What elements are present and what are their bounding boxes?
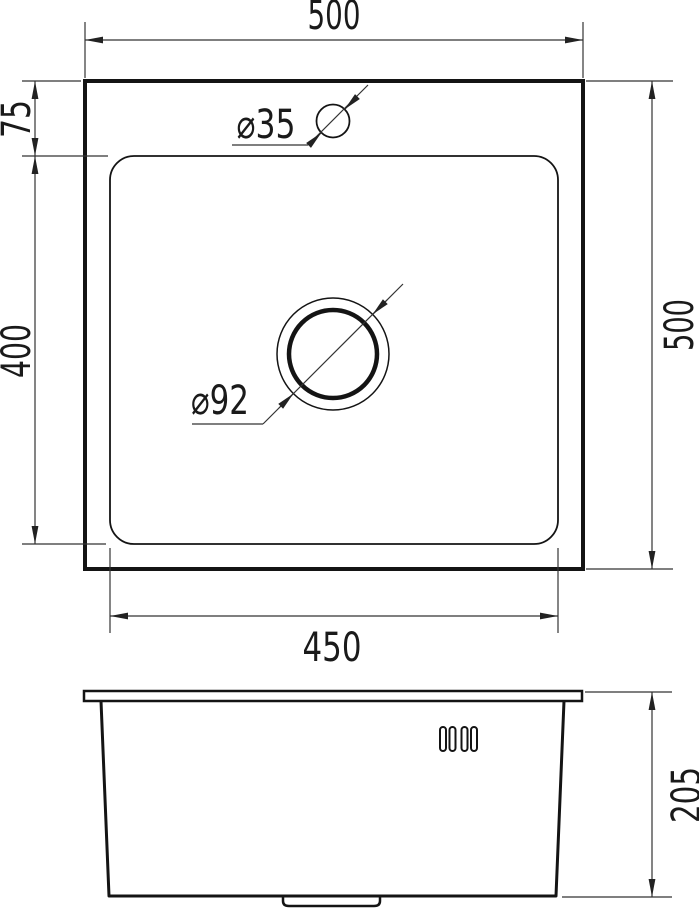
- label-faucet-hole-diameter: ⌀35: [237, 102, 296, 148]
- dim-label-bowl-length: 400: [0, 324, 40, 378]
- dim-depth: 205: [562, 692, 699, 897]
- leader-arrow: [373, 300, 387, 314]
- overflow-slot: [462, 727, 468, 751]
- sink-body-profile: [101, 701, 564, 896]
- dim-label-top-width: 500: [308, 0, 361, 39]
- leader-arrow: [345, 97, 357, 109]
- label-drain-hole-diameter: ⌀92: [191, 378, 249, 424]
- leader-arrow: [279, 394, 293, 408]
- faucet-hole: [317, 105, 350, 138]
- top-view: [85, 81, 583, 569]
- dim-top-width: 500: [85, 0, 583, 78]
- front-view: [84, 691, 582, 906]
- leader-arrow: [309, 133, 321, 145]
- dim-rim-inset: 75: [0, 81, 108, 156]
- dim-label-rim-inset: 75: [0, 100, 40, 138]
- overflow-slot: [440, 727, 446, 751]
- bowl-inner-edge: [110, 156, 558, 544]
- sink-dimensional-drawing: 500 75 400 500 450 ⌀35: [0, 0, 699, 908]
- overflow-slot: [450, 727, 456, 751]
- drain-fitting-profile: [283, 897, 380, 906]
- dim-right-height: 500: [586, 81, 699, 569]
- leader-drain-hole: ⌀92: [191, 284, 403, 424]
- leader-faucet-hole: ⌀35: [232, 85, 368, 148]
- sink-outer-edge: [85, 81, 583, 569]
- dim-label-bowl-width: 450: [303, 625, 362, 671]
- dim-bowl-width: 450: [110, 548, 558, 671]
- drawing-svg: 500 75 400 500 450 ⌀35: [0, 0, 699, 908]
- dim-bowl-length: 400: [0, 156, 106, 544]
- overflow-slots: [440, 727, 477, 751]
- overflow-slot: [471, 727, 477, 751]
- dim-label-right-height: 500: [657, 299, 699, 351]
- dim-label-depth: 205: [664, 767, 699, 823]
- sink-rim-profile: [84, 691, 582, 701]
